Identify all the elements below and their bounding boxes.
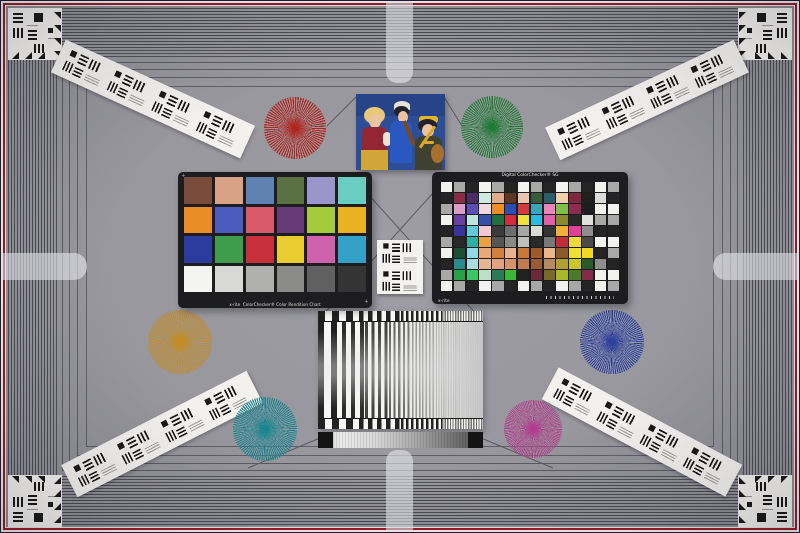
sg-patch — [608, 259, 619, 269]
classic-plus-mark-tl: + — [181, 173, 185, 178]
colorchecker-classic: x-rite ColorChecker® Color Rendition Cha… — [178, 172, 372, 308]
sg-title: Digital ColorChecker® SG — [476, 172, 584, 177]
bar-pattern-sq — [203, 111, 211, 119]
sg-patch — [544, 281, 555, 291]
sg-patch — [479, 270, 490, 280]
sg-patch — [582, 248, 593, 258]
bar-pattern-vb — [666, 74, 680, 88]
bar-pattern-sq — [557, 127, 565, 135]
bar-pattern-hb — [699, 60, 712, 74]
bar-pattern-hb2 — [661, 93, 673, 105]
sweep-tick-segment — [401, 419, 442, 429]
corner-target-bottom-left — [8, 475, 62, 527]
classic-patch — [307, 236, 335, 263]
bar-pattern-hb2 — [116, 87, 128, 99]
sg-patch — [505, 182, 516, 192]
bar-pattern-hb — [568, 383, 581, 397]
bar-pattern-hb2 — [649, 441, 661, 453]
sg-patch — [569, 248, 580, 258]
sweep-tick-segment — [442, 311, 483, 321]
classic-patch — [338, 177, 366, 204]
guide-line — [481, 438, 553, 468]
gray-ramp-fine-lines — [333, 432, 468, 448]
classic-patch — [215, 177, 243, 204]
cross-arm-right — [713, 253, 797, 280]
star-core — [580, 310, 644, 374]
bar-pattern-sq — [691, 447, 699, 455]
strip-pattern-unit — [148, 87, 200, 131]
siemens-star-magenta — [504, 400, 562, 458]
bar-pattern-sq — [204, 397, 212, 405]
sg-patch — [544, 237, 555, 247]
bar-pattern-vb — [622, 411, 636, 425]
bar-pattern-tx — [232, 397, 249, 410]
sg-patch — [505, 237, 516, 247]
corner-target-bottom-right — [738, 475, 792, 527]
classic-patch — [215, 207, 243, 234]
classic-patch — [184, 236, 212, 263]
bar-pattern-tx — [83, 74, 100, 87]
sg-patch — [454, 281, 465, 291]
strip-pattern-unit — [680, 443, 732, 488]
bar-pattern-sq — [161, 420, 169, 428]
sg-patch — [544, 270, 555, 280]
bar-pattern-hb2 — [205, 128, 217, 140]
bar-pattern-hb2 — [89, 471, 101, 483]
bar-pattern-tx — [574, 403, 591, 416]
sg-patch — [569, 193, 580, 203]
bar-pattern-vb2 — [209, 407, 222, 420]
bar-pattern-sq — [605, 401, 613, 409]
bar-pattern-hb2 — [572, 134, 584, 146]
bar-pattern-hb2 — [392, 284, 400, 292]
strip-pattern-unit — [593, 397, 645, 442]
bar-pattern-hb — [210, 115, 223, 129]
sg-patch — [608, 270, 619, 280]
strip-pattern-unit — [104, 66, 156, 110]
sg-patch — [569, 215, 580, 225]
bar-pattern-tx — [404, 285, 417, 291]
cross-arm-left — [3, 253, 87, 280]
sg-patch — [556, 281, 567, 291]
sg-patch — [441, 204, 452, 214]
bar-pattern-vb — [577, 116, 591, 130]
bar-pattern-hb — [611, 101, 624, 115]
bar-pattern-vb2 — [62, 61, 74, 74]
classic-patch — [184, 266, 212, 293]
resolution-strip-bottom-right — [542, 367, 743, 496]
bar-pattern-hb2 — [392, 256, 400, 264]
sg-patch — [531, 193, 542, 203]
sg-patch — [441, 270, 452, 280]
classic-patch — [338, 266, 366, 293]
sg-patch — [556, 237, 567, 247]
sg-patch — [544, 215, 555, 225]
bar-pattern-hb — [698, 452, 711, 466]
bar-pattern-vb2 — [553, 388, 566, 401]
sg-patch — [454, 215, 465, 225]
sg-patch — [569, 226, 580, 236]
guide-line — [444, 97, 462, 126]
sweep-tick-segment — [318, 419, 359, 429]
sg-patch — [492, 226, 503, 236]
bar-pattern-vb2 — [606, 117, 618, 130]
strip-pattern-unit — [381, 241, 420, 266]
sg-patch — [479, 215, 490, 225]
bar-pattern-vb2 — [695, 75, 707, 88]
sg-patch — [608, 182, 619, 192]
sg-patch — [467, 204, 478, 214]
bar-pattern-sq — [383, 243, 388, 248]
bar-pattern-tx — [660, 449, 677, 462]
sweep-tick-segment — [318, 311, 359, 321]
sg-patch — [595, 270, 606, 280]
bar-pattern-sq — [383, 271, 388, 276]
sg-patch — [595, 182, 606, 192]
sg-patch — [582, 237, 593, 247]
sg-patch — [505, 204, 516, 214]
sg-patch — [441, 182, 452, 192]
sg-patch — [467, 182, 478, 192]
sg-patch — [582, 215, 593, 225]
bar-pattern-hb — [392, 243, 400, 253]
sg-patch — [531, 237, 542, 247]
sg-patch — [595, 281, 606, 291]
sg-patch — [531, 182, 542, 192]
sg-patch — [556, 259, 567, 269]
bar-pattern-vb2 — [561, 137, 573, 150]
classic-patch — [246, 236, 274, 263]
sg-patch — [518, 215, 529, 225]
bar-pattern-hb — [166, 95, 179, 109]
sg-patch — [608, 226, 619, 236]
sg-patch — [531, 281, 542, 291]
bar-pattern-hb2 — [132, 448, 144, 460]
sg-patch — [479, 182, 490, 192]
sg-patch — [595, 259, 606, 269]
strip-pattern-unit — [200, 379, 252, 424]
bar-pattern-vb — [93, 452, 107, 466]
star-core — [233, 397, 297, 461]
siemens-star-green — [461, 96, 523, 158]
bar-pattern-vb — [622, 95, 636, 109]
sg-patch — [569, 182, 580, 192]
bar-pattern-vb — [132, 79, 146, 93]
bar-pattern-vb — [224, 385, 238, 399]
bar-pattern-vb2 — [78, 474, 91, 487]
sweep-fade-overlay — [318, 322, 483, 418]
sg-patch — [441, 248, 452, 258]
classic-patch — [246, 266, 274, 293]
sg-patch — [454, 237, 465, 247]
guide-line — [248, 438, 320, 468]
sg-patch — [544, 259, 555, 269]
bar-pattern-vb — [137, 430, 151, 444]
classic-patch — [215, 266, 243, 293]
classic-patch — [307, 207, 335, 234]
classic-patch — [277, 266, 305, 293]
bar-pattern-vb2 — [151, 101, 163, 114]
sg-patch — [518, 193, 529, 203]
classic-patch — [277, 207, 305, 234]
sg-patch — [556, 182, 567, 192]
photo-left-figure-skirt — [361, 150, 388, 170]
sg-patch — [505, 215, 516, 225]
bar-pattern-sq — [602, 107, 610, 115]
sg-patch — [582, 204, 593, 214]
cross-arm-bottom — [386, 450, 413, 530]
bar-pattern-tx — [629, 107, 646, 120]
sg-patch — [492, 193, 503, 203]
sg-patch — [531, 248, 542, 258]
sg-patch — [505, 193, 516, 203]
bar-pattern-vb — [709, 457, 723, 471]
bar-pattern-hb — [82, 458, 95, 472]
corner-target-top-left — [8, 8, 62, 60]
sg-patch — [518, 182, 529, 192]
sg-patch — [608, 237, 619, 247]
sg-patch — [441, 193, 452, 203]
corner-target-top-right — [738, 8, 792, 60]
bar-pattern-tx — [101, 464, 118, 477]
sg-patch — [544, 226, 555, 236]
sg-patch — [556, 270, 567, 280]
bar-pattern-vb — [403, 271, 413, 280]
sg-patch — [582, 281, 593, 291]
classic-patch — [307, 266, 335, 293]
musicians-photo — [356, 94, 445, 170]
bar-pattern-hb — [611, 406, 624, 420]
bar-pattern-vb2 — [107, 81, 119, 94]
strip-pattern-unit — [686, 48, 738, 92]
sg-patch — [608, 204, 619, 214]
strip-pattern-unit — [193, 107, 245, 151]
bar-pattern-tx — [188, 419, 205, 432]
strip-pattern-unit — [381, 269, 420, 294]
bar-pattern-tx — [128, 94, 145, 107]
sg-patch — [595, 248, 606, 258]
bar-pattern-tx — [617, 426, 634, 439]
sweep-body — [318, 322, 483, 418]
sg-brand: x-rite — [438, 298, 450, 303]
bar-pattern-hb2 — [705, 72, 717, 84]
sg-patch — [569, 204, 580, 214]
sg-patch — [556, 193, 567, 203]
bar-pattern-hb2 — [219, 404, 231, 416]
strip-pattern-unit — [550, 374, 602, 419]
sg-patch — [531, 226, 542, 236]
classic-patch — [184, 177, 212, 204]
bar-pattern-vb2 — [382, 282, 390, 291]
guide-line — [327, 97, 356, 126]
sg-patch — [582, 259, 593, 269]
sg-patch — [569, 237, 580, 247]
classic-patch — [277, 177, 305, 204]
classic-patch — [277, 236, 305, 263]
sg-patch — [595, 215, 606, 225]
star-core — [264, 97, 326, 159]
sg-patch — [467, 259, 478, 269]
bar-pattern-sq — [648, 424, 656, 432]
siemens-star-blue — [580, 310, 644, 374]
bar-pattern-hb — [77, 54, 90, 68]
bar-pattern-vb — [180, 407, 194, 421]
sg-patch — [544, 182, 555, 192]
sg-patch — [556, 204, 567, 214]
siemens-star-red — [264, 97, 326, 159]
sg-patch — [595, 204, 606, 214]
sg-patch — [492, 281, 503, 291]
classic-patch — [338, 207, 366, 234]
sg-patch — [608, 281, 619, 291]
bar-pattern-hb2 — [161, 108, 173, 120]
sg-patch — [518, 237, 529, 247]
sg-patch — [492, 204, 503, 214]
sg-patch — [608, 215, 619, 225]
classic-caption: x-rite ColorChecker® Color Rendition Cha… — [225, 302, 326, 307]
sg-patch — [544, 193, 555, 203]
sg-patch — [454, 259, 465, 269]
bar-pattern-sq — [114, 70, 122, 78]
sg-patch — [467, 193, 478, 203]
bar-pattern-hb2 — [72, 67, 84, 79]
bar-pattern-hb — [566, 122, 579, 136]
bar-pattern-hb2 — [617, 114, 629, 126]
bar-pattern-vb2 — [650, 96, 662, 109]
sg-patch — [531, 270, 542, 280]
bar-pattern-tx — [145, 442, 162, 455]
resolution-strip-top-right — [545, 40, 749, 161]
bar-pattern-vb2 — [165, 429, 178, 442]
sg-patch — [505, 226, 516, 236]
sg-patch — [479, 237, 490, 247]
sg-patch — [582, 226, 593, 236]
sweep-ticks-bottom — [318, 418, 483, 429]
sg-patch — [556, 248, 567, 258]
bar-pattern-vb — [403, 243, 413, 252]
sg-patch — [492, 248, 503, 258]
bar-pattern-vb — [222, 120, 236, 134]
gray-ramp — [318, 432, 483, 448]
classic-plus-mark-br: + — [365, 299, 369, 304]
sweep-ticks-top — [318, 311, 483, 322]
sg-patch — [492, 259, 503, 269]
sg-patch — [544, 204, 555, 214]
sg-patch — [505, 248, 516, 258]
sg-patch — [454, 204, 465, 214]
bar-pattern-tx — [718, 66, 735, 79]
photo-left-figure-face — [369, 114, 381, 128]
sg-patch — [479, 204, 490, 214]
sg-patch — [505, 270, 516, 280]
bar-pattern-sq — [646, 86, 654, 94]
resolution-strip-bottom-left — [61, 371, 263, 498]
sg-patch — [595, 193, 606, 203]
sg-patch — [454, 226, 465, 236]
bar-pattern-vb — [710, 54, 724, 68]
bar-pattern-vb — [177, 100, 191, 114]
bar-pattern-hb2 — [176, 426, 188, 438]
bar-pattern-hb2 — [562, 395, 574, 407]
sg-patch — [479, 226, 490, 236]
sg-patch — [505, 259, 516, 269]
siemens-star-orange — [148, 310, 212, 374]
sg-patch — [454, 248, 465, 258]
sg-patch — [441, 259, 452, 269]
sg-patch — [569, 281, 580, 291]
sweep-tick-segment — [359, 419, 400, 429]
classic-grid — [184, 177, 366, 292]
bar-pattern-tx — [674, 87, 691, 100]
photo-lute-body — [431, 144, 444, 163]
classic-patch — [246, 207, 274, 234]
bar-pattern-sq — [117, 442, 125, 450]
resolution-strip-top-left — [51, 39, 255, 158]
bar-pattern-vb2 — [121, 452, 134, 465]
bar-pattern-sq — [70, 50, 78, 58]
bar-pattern-tx — [217, 135, 234, 148]
sg-patch — [441, 237, 452, 247]
classic-patch — [215, 236, 243, 263]
sg-patch — [492, 215, 503, 225]
sg-patch — [582, 193, 593, 203]
sg-patch — [518, 204, 529, 214]
bar-pattern-vb — [579, 388, 593, 402]
sg-patch — [569, 270, 580, 280]
bar-pattern-vb2 — [196, 121, 208, 134]
bar-pattern-hb — [392, 271, 400, 281]
sg-ruler-marks — [546, 296, 614, 299]
star-core — [504, 400, 562, 458]
sg-patch — [531, 215, 542, 225]
sg-patch — [479, 248, 490, 258]
sg-patch — [582, 182, 593, 192]
sg-patch — [544, 248, 555, 258]
sg-patch — [505, 281, 516, 291]
strip-pattern-unit — [59, 46, 111, 90]
strip-pattern-unit — [642, 68, 694, 112]
bar-pattern-vb2 — [596, 411, 609, 424]
sweep-tick-segment — [359, 311, 400, 321]
star-core — [461, 96, 523, 158]
sg-patch — [556, 226, 567, 236]
bar-pattern-tx — [585, 128, 602, 141]
bar-pattern-vb2 — [639, 434, 652, 447]
bar-pattern-sq — [561, 378, 569, 386]
sg-patch — [467, 281, 478, 291]
sg-patch — [479, 281, 490, 291]
classic-caption-text: ColorChecker® Color Rendition Chart — [243, 302, 321, 307]
sg-patch — [492, 270, 503, 280]
sg-patch — [492, 237, 503, 247]
strip-pattern-unit — [69, 446, 121, 491]
sweep-tick-segment — [442, 419, 483, 429]
strip-pattern-unit — [113, 423, 165, 468]
sg-patch — [479, 259, 490, 269]
colorchecker-sg: Digital ColorChecker® SG x-rite — [432, 172, 628, 304]
bar-pattern-hb — [126, 436, 139, 450]
sg-patch — [518, 226, 529, 236]
bar-pattern-tx — [703, 472, 720, 485]
sg-patch — [467, 248, 478, 258]
bar-pattern-hb2 — [605, 418, 617, 430]
bar-pattern-hb — [121, 74, 134, 88]
sg-patch — [556, 215, 567, 225]
star-core — [148, 310, 212, 374]
sg-patch — [518, 259, 529, 269]
bar-pattern-vb2 — [683, 457, 696, 470]
sg-patch — [479, 193, 490, 203]
